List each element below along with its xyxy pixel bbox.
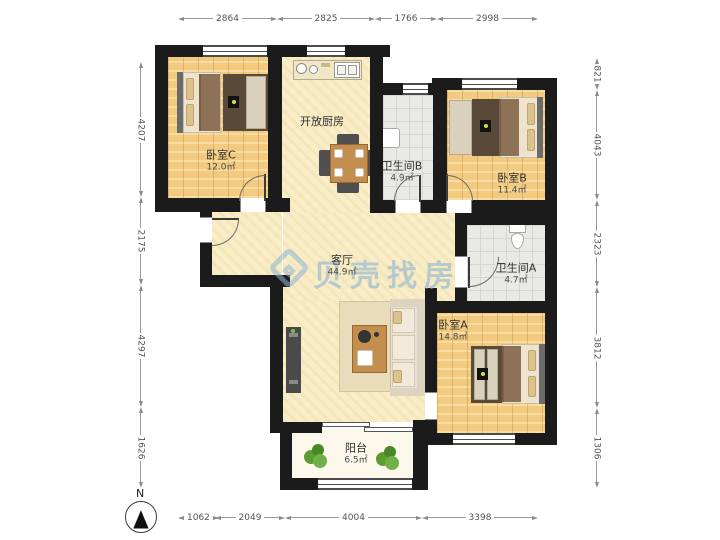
room-name: 阳台 — [345, 442, 367, 455]
plate — [355, 149, 364, 158]
bedroom-a-doorway — [425, 392, 437, 420]
wall — [268, 57, 282, 198]
dimension-right-1: 821 — [590, 58, 603, 90]
wall — [270, 275, 283, 422]
sink-basin — [348, 65, 357, 75]
dimension-value: 2323 — [592, 232, 602, 255]
plant-icon — [304, 444, 328, 470]
room-name: 卧室A — [438, 319, 468, 332]
throw-pillow — [393, 311, 402, 324]
throw-pillow — [393, 370, 402, 383]
sofa-armrest — [390, 388, 426, 396]
dimension-right-5: 1306 — [590, 408, 603, 488]
room-name: 卧室C — [206, 149, 236, 162]
dimension-value: 3812 — [592, 336, 602, 359]
compass-needle: ▲ — [133, 505, 148, 529]
dimension-value: 3398 — [466, 513, 495, 523]
counter-detail — [321, 63, 330, 67]
room-label-bathroom-a: 卫生间A 4.7㎡ — [496, 262, 537, 287]
dimension-value: 821 — [592, 65, 602, 82]
dimension-left-1: 4207 — [134, 62, 147, 197]
window — [307, 45, 345, 57]
wall — [413, 445, 428, 490]
plate — [334, 168, 343, 177]
room-area: 4.7㎡ — [496, 275, 537, 286]
room-area: 11.4㎡ — [497, 185, 527, 196]
dimension-value: 1766 — [392, 14, 421, 24]
sofa-armrest — [390, 299, 426, 307]
dimension-value: 1306 — [592, 437, 602, 460]
bed-duvet — [502, 346, 521, 402]
tv-indicator — [291, 329, 295, 333]
dimension-value: 2175 — [136, 230, 146, 253]
compass-icon: ▲ — [125, 501, 157, 533]
dimension-right-4: 3812 — [590, 287, 603, 408]
room-label-kitchen: 开放厨房 — [300, 115, 344, 129]
tv-cabinet-detail — [289, 333, 298, 337]
room-area: 44.9㎡ — [327, 267, 356, 278]
dimension-value: 4207 — [136, 118, 146, 141]
wall — [280, 422, 292, 490]
toilet-tank — [509, 224, 526, 233]
dimension-top-2: 2825 — [277, 12, 375, 25]
room-label-bedroom-a: 卧室A 14.8㎡ — [438, 319, 468, 344]
pillow — [528, 376, 536, 397]
bathroom-b-door-opening — [395, 200, 421, 213]
dimension-bottom-3: 4004 — [285, 511, 422, 524]
plant-icon — [376, 446, 400, 472]
tray — [357, 350, 373, 366]
room-area: 4.9㎡ — [382, 173, 423, 184]
tv-indicator — [232, 100, 236, 104]
window — [453, 433, 515, 445]
bedroom-b-door-opening — [446, 200, 472, 213]
room-name: 卫生间B — [382, 160, 423, 173]
dimension-value: 4297 — [136, 335, 146, 358]
plate — [334, 149, 343, 158]
balcony-sliding-door — [322, 422, 370, 427]
room-name: 客厅 — [331, 254, 353, 267]
room-label-bathroom-b: 卫生间B 4.9㎡ — [382, 160, 423, 185]
wall — [370, 45, 383, 213]
stove-burner — [309, 65, 318, 74]
window — [462, 78, 517, 90]
wall — [433, 78, 447, 213]
wall — [155, 45, 168, 212]
wardrobe — [449, 100, 472, 155]
dimension-value: 2864 — [213, 14, 242, 24]
dimension-left-2: 2175 — [134, 197, 147, 285]
wall — [270, 422, 322, 433]
dimension-value: 2825 — [312, 14, 341, 24]
entry-door-opening — [200, 217, 212, 243]
dimension-left-3: 4297 — [134, 285, 147, 407]
sofa-cushion — [392, 335, 415, 360]
balcony-sliding-door — [364, 427, 413, 432]
window — [403, 83, 428, 95]
dimension-value: 4043 — [592, 134, 602, 157]
wall — [155, 198, 290, 212]
sink-basin — [337, 65, 346, 75]
tv-indicator — [484, 124, 488, 128]
dimension-top-3: 1766 — [375, 12, 437, 25]
floorplan-canvas: 贝壳找房 卧室C 12.0㎡ 开放厨房 卫生间B 4.9㎡ 卧室B 11.4㎡ … — [0, 0, 720, 540]
dimension-right-3: 2323 — [590, 200, 603, 287]
pillow — [527, 129, 535, 151]
tv-indicator — [481, 372, 485, 376]
room-label-living: 客厅 44.9㎡ — [327, 254, 356, 279]
wardrobe-door — [487, 349, 498, 400]
pillow — [528, 350, 536, 371]
dimension-right-2: 4043 — [590, 90, 603, 200]
room-area: 6.5㎡ — [344, 455, 367, 466]
dimension-bottom-1: 1062 — [178, 511, 215, 524]
wall — [425, 288, 437, 392]
cup — [374, 332, 379, 337]
room-area: 14.8㎡ — [438, 332, 468, 343]
dimension-value: 4004 — [339, 513, 368, 523]
bed-duvet — [199, 74, 220, 131]
dimension-bottom-2: 2049 — [215, 511, 285, 524]
dimension-top-1: 2864 — [178, 12, 277, 25]
wall — [467, 213, 557, 225]
room-name: 开放厨房 — [300, 115, 344, 128]
bed-headboard — [537, 97, 543, 158]
dimension-bottom-4: 3398 — [422, 511, 538, 524]
compass-north-label: N — [136, 487, 144, 500]
room-area: 12.0㎡ — [206, 162, 236, 173]
plate — [355, 168, 364, 177]
tv-cabinet-detail — [289, 380, 298, 384]
kettle — [358, 330, 371, 343]
pillow — [527, 103, 535, 125]
dimension-top-4: 2998 — [437, 12, 538, 25]
room-label-bedroom-c: 卧室C 12.0㎡ — [206, 149, 236, 174]
wall — [545, 78, 557, 445]
stove-burner — [296, 63, 307, 74]
window — [318, 478, 412, 490]
room-label-bedroom-b: 卧室B 11.4㎡ — [497, 172, 527, 197]
wardrobe-door — [246, 76, 266, 129]
room-label-balcony: 阳台 6.5㎡ — [344, 442, 367, 467]
wall — [155, 45, 390, 57]
dimension-value: 2049 — [236, 513, 265, 523]
pillow — [186, 78, 194, 100]
dimension-value: 1626 — [136, 436, 146, 459]
dimension-value: 1062 — [184, 513, 213, 523]
dimension-value: 2998 — [473, 14, 502, 24]
bed-duvet — [499, 99, 519, 156]
window — [203, 45, 267, 57]
pillow — [186, 104, 194, 126]
dimension-left-4: 1626 — [134, 407, 147, 488]
room-name: 卫生间A — [496, 262, 537, 275]
room-name: 卧室B — [497, 172, 527, 185]
